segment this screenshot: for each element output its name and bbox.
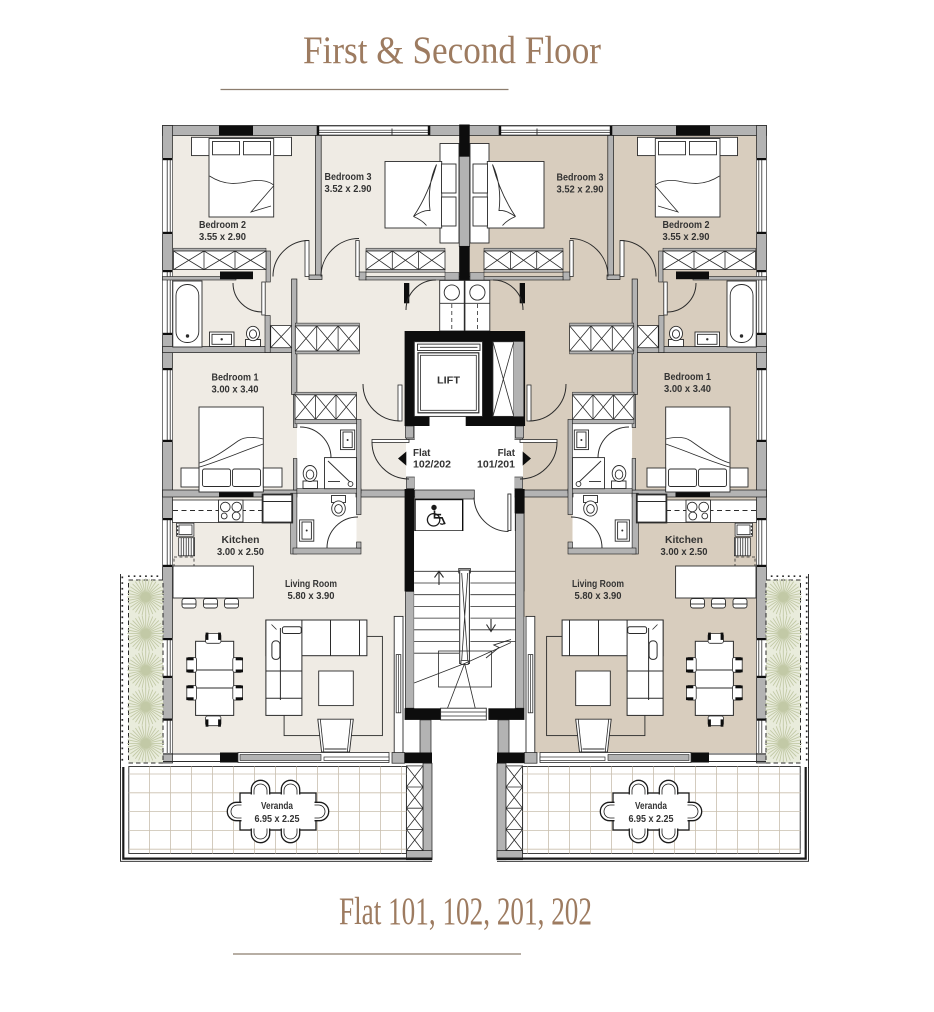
svg-text:Veranda: Veranda [635,801,667,812]
svg-text:3.00 x 3.40: 3.00 x 3.40 [212,385,260,396]
svg-text:Veranda: Veranda [261,801,293,812]
svg-text:Bedroom 2: Bedroom 2 [199,220,247,231]
svg-text:6.95 x 2.25: 6.95 x 2.25 [255,814,301,825]
svg-text:Bedroom 3: Bedroom 3 [325,172,373,183]
svg-text:LIFT: LIFT [437,376,460,387]
svg-text:Flat 101, 102, 201, 202: Flat 101, 102, 201, 202 [339,890,592,933]
svg-text:Flat: Flat [413,448,431,459]
svg-text:First & Second Floor: First & Second Floor [303,29,601,72]
svg-text:5.80 x 3.90: 5.80 x 3.90 [575,591,623,602]
svg-text:3.52 x 2.90: 3.52 x 2.90 [557,185,605,196]
svg-text:Living Room: Living Room [285,579,337,590]
svg-text:Bedroom 2: Bedroom 2 [663,220,711,231]
svg-text:Flat: Flat [498,448,516,459]
svg-text:Kitchen: Kitchen [222,535,260,546]
svg-text:Bedroom 3: Bedroom 3 [557,173,605,184]
svg-text:Kitchen: Kitchen [665,535,703,546]
svg-text:3.00 x 2.50: 3.00 x 2.50 [217,547,265,558]
svg-text:3.00 x 2.50: 3.00 x 2.50 [661,547,709,558]
svg-text:3.55 x 2.90: 3.55 x 2.90 [199,232,247,243]
svg-text:Bedroom 1: Bedroom 1 [664,372,712,383]
svg-text:Bedroom 1: Bedroom 1 [212,373,260,384]
svg-text:102/202: 102/202 [413,460,452,471]
svg-text:3.00 x 3.40: 3.00 x 3.40 [664,384,712,395]
svg-text:3.52 x 2.90: 3.52 x 2.90 [325,184,373,195]
svg-text:3.55 x 2.90: 3.55 x 2.90 [663,232,711,243]
svg-text:5.80 x 3.90: 5.80 x 3.90 [288,591,336,602]
svg-text:Living Room: Living Room [572,579,624,590]
svg-text:101/201: 101/201 [477,460,516,471]
svg-text:6.95 x 2.25: 6.95 x 2.25 [629,814,675,825]
